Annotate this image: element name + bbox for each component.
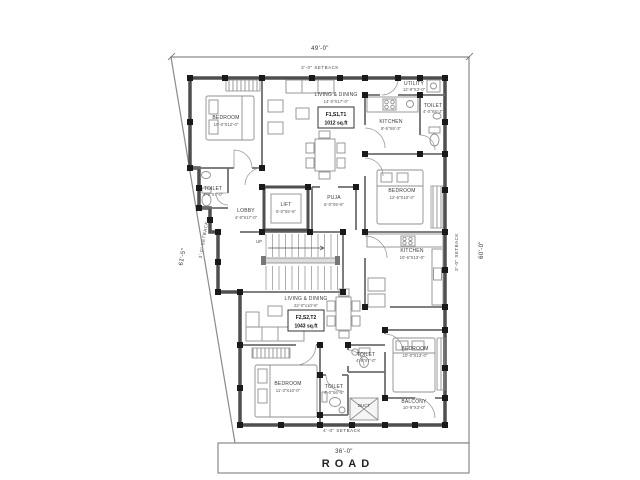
room-living1-size: 14'-0"X17'-0" <box>324 99 349 104</box>
room-living2-size: 22'-0"x10'-6" <box>294 303 319 308</box>
room-lobby-name: LOBBY <box>237 208 255 214</box>
road-dimension: 36'-0" <box>335 449 353 455</box>
room-bedroom4-name: BEDROOM <box>401 346 428 352</box>
room-bedroom1-size: 10'-0"X12'-0" <box>214 122 239 127</box>
room-lift-size: 5'-0"X5'-6" <box>276 209 296 214</box>
room-bedroom4-size: 10'-0"X13'-0" <box>403 353 428 358</box>
wardrobe <box>431 186 443 228</box>
flat1-code: F1,S1,T1 <box>326 112 347 118</box>
duct-shaft <box>350 398 378 420</box>
duct-label: DUCT <box>358 403 370 408</box>
dimension-left: 61'-5" <box>179 248 188 266</box>
room-bedroom2-name: BEDROOM <box>388 188 415 194</box>
flat2-code: F2,S2,T2 <box>296 315 317 321</box>
room-kitchen1-size: 8'-6"X8'-3" <box>381 126 401 131</box>
wardrobe <box>252 348 290 358</box>
room-lobby-size: 4'-9"X17'-0" <box>235 215 258 220</box>
floor-plan-canvas: F1,S1,T1 1012 sq.ft F2,S2,T2 1043 sq.ft … <box>0 0 640 480</box>
room-kitchen2-name: KITCHEN <box>400 248 424 254</box>
room-living2-name: LIVING & DINING <box>284 296 327 302</box>
setback-right-label: 3'-0" SETBACK <box>454 233 459 271</box>
room-toilet2a-size: 4'-6"X7'-0" <box>356 358 376 363</box>
room-puja-name: PUJA <box>327 195 341 201</box>
room-bedroom3-name: BEDROOM <box>274 381 301 387</box>
room-utility-size: 12'-9"X3'-0" <box>403 87 426 92</box>
flat2-area: 1043 sq.ft <box>294 324 317 330</box>
road-label: ROAD <box>322 458 374 470</box>
room-living1-name: LIVING & DINING <box>314 92 357 98</box>
wardrobe <box>226 80 260 91</box>
dimension-top: 49'-0" <box>311 46 329 52</box>
setback-bottom-label: 4'-0" SETBACK <box>323 428 361 433</box>
room-bedroom2-size: 12'-6"X10'-0" <box>390 195 415 200</box>
room-puja-size: 6'-0"X5'-6" <box>324 202 344 207</box>
room-toilet2b-size: 4'-0"X6'-9" <box>324 390 344 395</box>
room-bedroom3-size: 11'-3"X10'-0" <box>276 388 301 393</box>
wardrobe <box>437 338 445 390</box>
flat1-area: 1012 sq.ft <box>324 121 347 127</box>
setback-top-label: 3'-0" SETBACK <box>301 65 339 70</box>
unit-box-flat2: F2,S2,T2 1043 sq.ft <box>288 310 324 331</box>
room-bedroom1-name: BEDROOM <box>212 115 239 121</box>
floor-plan-svg: F1,S1,T1 1012 sq.ft F2,S2,T2 1043 sq.ft … <box>0 0 640 480</box>
room-kitchen2-size: 10'-6"X13'-9" <box>400 255 425 260</box>
room-balcony-size: 10'-9"X3'-0" <box>403 405 426 410</box>
room-lift-name: LIFT <box>280 202 291 208</box>
up-label: UP <box>256 239 262 244</box>
room-toilet1l-size: 4'-0"X7'-0" <box>203 192 223 197</box>
unit-box-flat1: F1,S1,T1 1012 sq.ft <box>318 107 354 128</box>
dimension-right: 60'-0" <box>479 241 485 259</box>
room-kitchen1-name: KITCHEN <box>379 119 403 125</box>
room-toilet1r-size: 4'-0"X8'-2" <box>423 109 443 114</box>
